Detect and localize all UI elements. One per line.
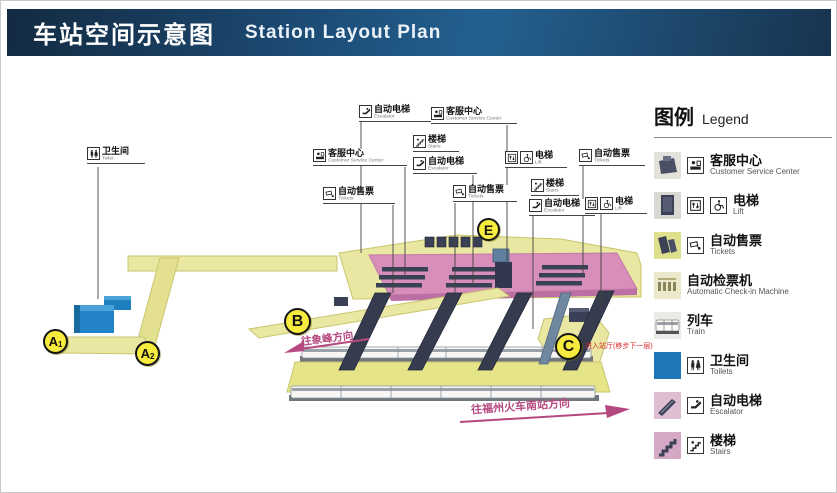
lift-icon bbox=[505, 151, 518, 164]
lift-icon bbox=[585, 197, 598, 210]
tickets-icon bbox=[687, 237, 704, 254]
train-thumb bbox=[654, 312, 681, 339]
toilet-block bbox=[74, 296, 131, 333]
customer-service-icon bbox=[431, 107, 444, 120]
concourse-lift-shaft bbox=[493, 249, 512, 288]
legend-item-lift: 电梯Lift bbox=[654, 192, 832, 219]
wheelchair-icon bbox=[520, 151, 533, 164]
legend-panel: 图例 Legend 客服中心Customer Service Center 电梯… bbox=[654, 101, 832, 472]
legend-item-toilet: 卫生间Toilets bbox=[654, 352, 832, 379]
callout-stairs-mid: 楼梯Stairs bbox=[413, 135, 459, 152]
lift-icon bbox=[687, 197, 704, 214]
callout-tickets-mid: 自动售票Tickets bbox=[453, 185, 517, 202]
tickets-thumb bbox=[654, 232, 681, 259]
callout-customer-service-left: 客服中心Customer Service Center bbox=[313, 149, 407, 166]
legend-item-train: 列车Train bbox=[654, 312, 832, 339]
tickets-icon bbox=[579, 149, 592, 162]
callout-stairs-right: 楼梯Stairs bbox=[531, 179, 579, 196]
tickets-icon bbox=[323, 187, 336, 200]
stairs-icon bbox=[531, 179, 544, 192]
legend-item-escalator: 自动电梯Escalator bbox=[654, 392, 832, 419]
escalator-icon bbox=[413, 157, 426, 170]
callout-tickets-left: 自动售票Tickets bbox=[323, 187, 395, 204]
wheelchair-icon bbox=[710, 197, 727, 214]
legend-item-check-in-machine: 自动检票机Automatic Check-in Machine bbox=[654, 272, 832, 299]
escalator-icon bbox=[359, 105, 372, 118]
marker-entrance-b: B bbox=[284, 308, 311, 335]
callout-escalator-mid: 自动电梯Escalator bbox=[413, 157, 477, 174]
toilet-thumb bbox=[654, 352, 681, 379]
stairs-icon bbox=[687, 437, 704, 454]
marker-entrance-a2: A2 bbox=[135, 341, 160, 366]
wheelchair-icon bbox=[600, 197, 613, 210]
escalator-thumb bbox=[654, 392, 681, 419]
callout-tickets-right: 自动售票Tickets bbox=[579, 149, 645, 166]
stairs-thumb bbox=[654, 432, 681, 459]
lift-thumb bbox=[654, 192, 681, 219]
enter-hall-note: 进入站厅(移步下一层) bbox=[585, 341, 653, 351]
callout-lift-mid: 电梯Lift bbox=[505, 151, 567, 168]
stairs-icon bbox=[413, 135, 426, 148]
callout-customer-service-top: 客服中心Customer Service Center bbox=[431, 107, 517, 124]
marker-entrance-c: C bbox=[555, 333, 582, 360]
callout-toilet: 卫生间Toilet bbox=[87, 147, 145, 164]
escalator-icon bbox=[529, 199, 542, 212]
marker-entrance-a1: A1 bbox=[43, 329, 68, 354]
customer-service-icon bbox=[313, 149, 326, 162]
fare-gate-clusters bbox=[376, 265, 588, 288]
toilet-icon bbox=[87, 147, 100, 160]
toilet-icon bbox=[687, 357, 704, 374]
marker-entrance-e: E bbox=[477, 218, 500, 241]
legend-item-stairs: 楼梯Stairs bbox=[654, 432, 832, 459]
check-in-machine-thumb bbox=[654, 272, 681, 299]
customer-service-thumb bbox=[654, 152, 681, 179]
legend-item-customer-service: 客服中心Customer Service Center bbox=[654, 152, 832, 179]
customer-service-icon bbox=[687, 157, 704, 174]
callout-escalator-top: 自动电梯Escalator bbox=[359, 105, 433, 122]
legend-title: 图例 Legend bbox=[654, 101, 832, 138]
station-layout-page: 车站空间示意图 Station Layout Plan bbox=[0, 0, 837, 493]
legend-item-tickets: 自动售票Tickets bbox=[654, 232, 832, 259]
tickets-icon bbox=[453, 185, 466, 198]
callout-lift-right: 电梯Lift bbox=[585, 197, 647, 214]
escalator-icon bbox=[687, 397, 704, 414]
